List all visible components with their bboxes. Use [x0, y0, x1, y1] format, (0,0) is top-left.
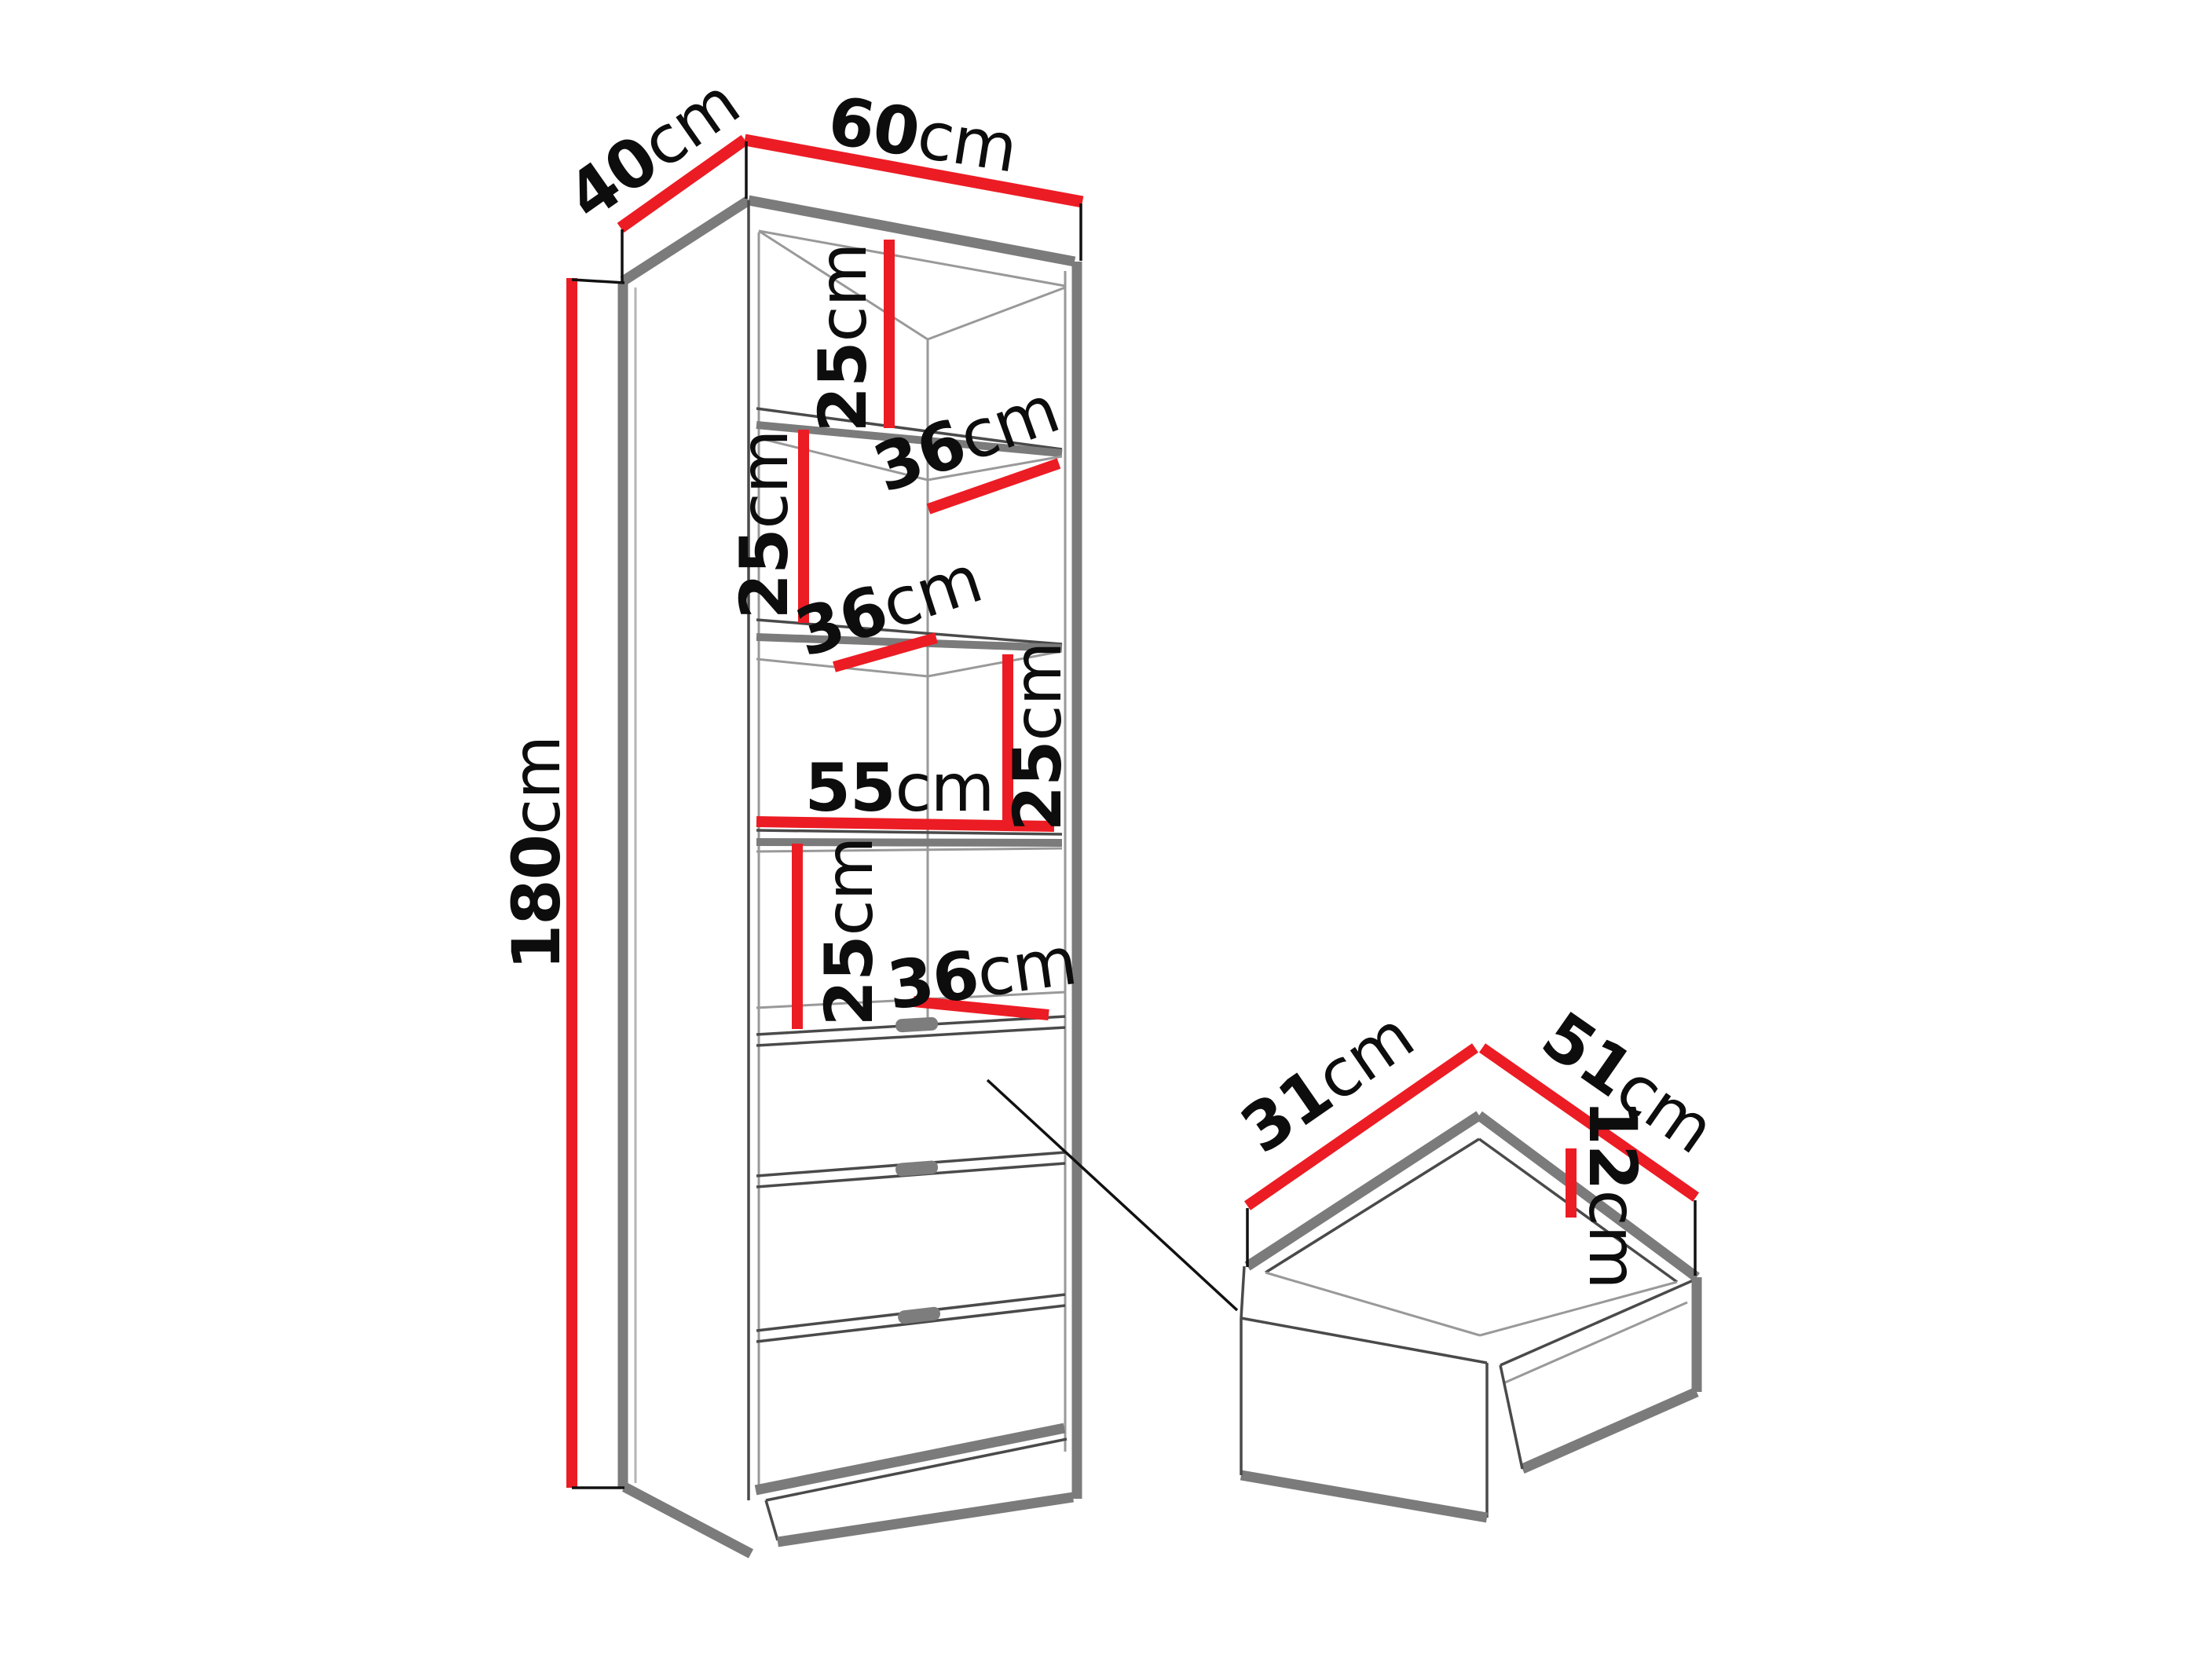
- shelf3-front-edge: [756, 842, 1062, 843]
- drawer-side-inner-line: [1505, 1302, 1687, 1382]
- plinth-left-edge: [766, 1500, 778, 1540]
- label-25-4: 25cm: [811, 837, 888, 1027]
- drawer-interior-left: [1265, 1273, 1480, 1335]
- label-height-180: 180cm: [498, 736, 575, 970]
- label-25-3: 25cm: [999, 643, 1076, 832]
- label-25-1: 25cm: [804, 244, 881, 433]
- cabinet-top-front-edge: [749, 200, 1075, 262]
- label-drawer-31: 31cm: [1228, 997, 1427, 1168]
- drawer-rim-inner-left: [1265, 1139, 1479, 1273]
- cabinet-side-bottom-edge: [624, 1487, 751, 1554]
- diagram-canvas: 40cm 60cm 180cm 25cm 36cm 25cm 36cm 25cm…: [0, 0, 2212, 1659]
- label-36-1: 36cm: [864, 371, 1068, 507]
- cabinet-drawers: [756, 1016, 1065, 1342]
- furniture-dimension-diagram: 40cm 60cm 180cm 25cm 36cm 25cm 36cm 25cm…: [0, 0, 2212, 1659]
- cabinet-bottom-edge: [756, 1428, 1064, 1490]
- dimension-lines: [572, 140, 1696, 1488]
- top-interior-diagonal-right: [928, 287, 1065, 339]
- extension-ticks: [572, 141, 1695, 1488]
- drawer-interior-right: [1480, 1282, 1677, 1335]
- drawer-side-bottom-edge: [1522, 1392, 1697, 1469]
- drawer-front-bottom-edge: [1241, 1475, 1487, 1518]
- tick-height-top: [572, 280, 624, 283]
- label-36-3: 36cm: [883, 922, 1081, 1025]
- label-width-60: 60cm: [823, 82, 1022, 187]
- label-25-2: 25cm: [726, 430, 803, 620]
- drawer-front-top-edge: [1241, 1318, 1487, 1363]
- plinth-bottom-edge: [778, 1497, 1073, 1542]
- label-55: 55cm: [805, 749, 994, 826]
- label-drawer-12: 12cm: [1574, 1100, 1651, 1289]
- drawer-front-left-joint: [1241, 1266, 1244, 1318]
- drawer-pointer-line: [987, 1080, 1237, 1310]
- plinth-top-line: [766, 1439, 1067, 1500]
